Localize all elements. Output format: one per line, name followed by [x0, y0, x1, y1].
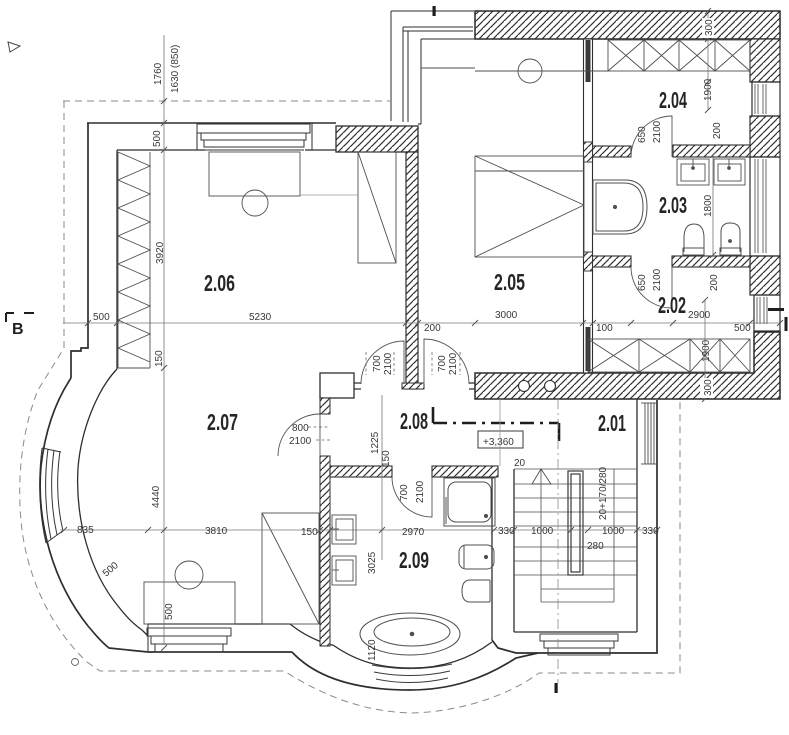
svg-text:1000: 1000 — [531, 526, 554, 537]
svg-text:3920: 3920 — [155, 241, 166, 264]
svg-text:1800: 1800 — [703, 194, 714, 217]
svg-text:3000: 3000 — [495, 310, 518, 321]
svg-text:1120: 1120 — [367, 639, 378, 661]
svg-text:3810: 3810 — [205, 526, 228, 537]
svg-text:835: 835 — [77, 525, 94, 536]
svg-text:1900: 1900 — [703, 78, 714, 101]
svg-text:650: 650 — [637, 274, 648, 291]
svg-text:700: 700 — [437, 355, 448, 372]
svg-text:2.01: 2.01 — [598, 410, 626, 436]
svg-text:2100: 2100 — [652, 120, 663, 143]
svg-text:700: 700 — [399, 484, 410, 501]
svg-text:330: 330 — [642, 526, 659, 537]
svg-text:2100: 2100 — [448, 352, 459, 375]
svg-text:20+170/280: 20+170/280 — [598, 466, 609, 520]
svg-text:150: 150 — [154, 350, 165, 367]
svg-text:2100: 2100 — [383, 352, 394, 375]
svg-text:5230: 5230 — [249, 312, 272, 323]
svg-text:650: 650 — [637, 126, 648, 143]
svg-text:1760: 1760 — [153, 62, 164, 85]
svg-text:1225: 1225 — [370, 431, 381, 454]
svg-text:700: 700 — [372, 355, 383, 372]
svg-text:4440: 4440 — [151, 485, 162, 508]
svg-text:150: 150 — [381, 450, 392, 467]
svg-text:2.05: 2.05 — [494, 269, 525, 295]
svg-text:2.02: 2.02 — [658, 292, 686, 318]
svg-text:1900: 1900 — [701, 339, 712, 362]
svg-text:B: B — [12, 321, 24, 338]
svg-text:2.03: 2.03 — [659, 192, 687, 218]
svg-text:1630 (850): 1630 (850) — [170, 45, 181, 93]
svg-text:150: 150 — [301, 527, 318, 538]
svg-text:330: 330 — [498, 526, 515, 537]
svg-text:1000: 1000 — [602, 526, 625, 537]
svg-text:500: 500 — [152, 130, 163, 147]
svg-text:2.08: 2.08 — [400, 408, 428, 434]
svg-text:2.04: 2.04 — [659, 87, 687, 113]
svg-text:2100: 2100 — [652, 268, 663, 291]
svg-text:500: 500 — [164, 603, 175, 620]
svg-text:2.07: 2.07 — [207, 409, 238, 435]
svg-text:+3,360: +3,360 — [483, 437, 514, 448]
svg-text:280: 280 — [587, 541, 604, 552]
svg-text:800: 800 — [292, 423, 309, 434]
svg-text:2.06: 2.06 — [204, 270, 235, 296]
svg-text:2.09: 2.09 — [399, 547, 429, 573]
svg-text:2970: 2970 — [402, 527, 425, 538]
svg-text:500: 500 — [734, 323, 751, 334]
svg-text:3025: 3025 — [367, 551, 378, 574]
svg-text:300: 300 — [703, 379, 714, 396]
svg-text:2900: 2900 — [688, 310, 711, 321]
svg-text:200: 200 — [424, 323, 441, 334]
svg-text:200: 200 — [712, 122, 723, 139]
svg-text:2100: 2100 — [415, 480, 426, 503]
svg-text:300: 300 — [704, 19, 715, 36]
svg-text:100: 100 — [596, 323, 613, 334]
svg-text:20: 20 — [514, 458, 526, 469]
svg-text:500: 500 — [93, 312, 110, 323]
svg-text:2100: 2100 — [289, 436, 312, 447]
svg-text:200: 200 — [709, 274, 720, 291]
